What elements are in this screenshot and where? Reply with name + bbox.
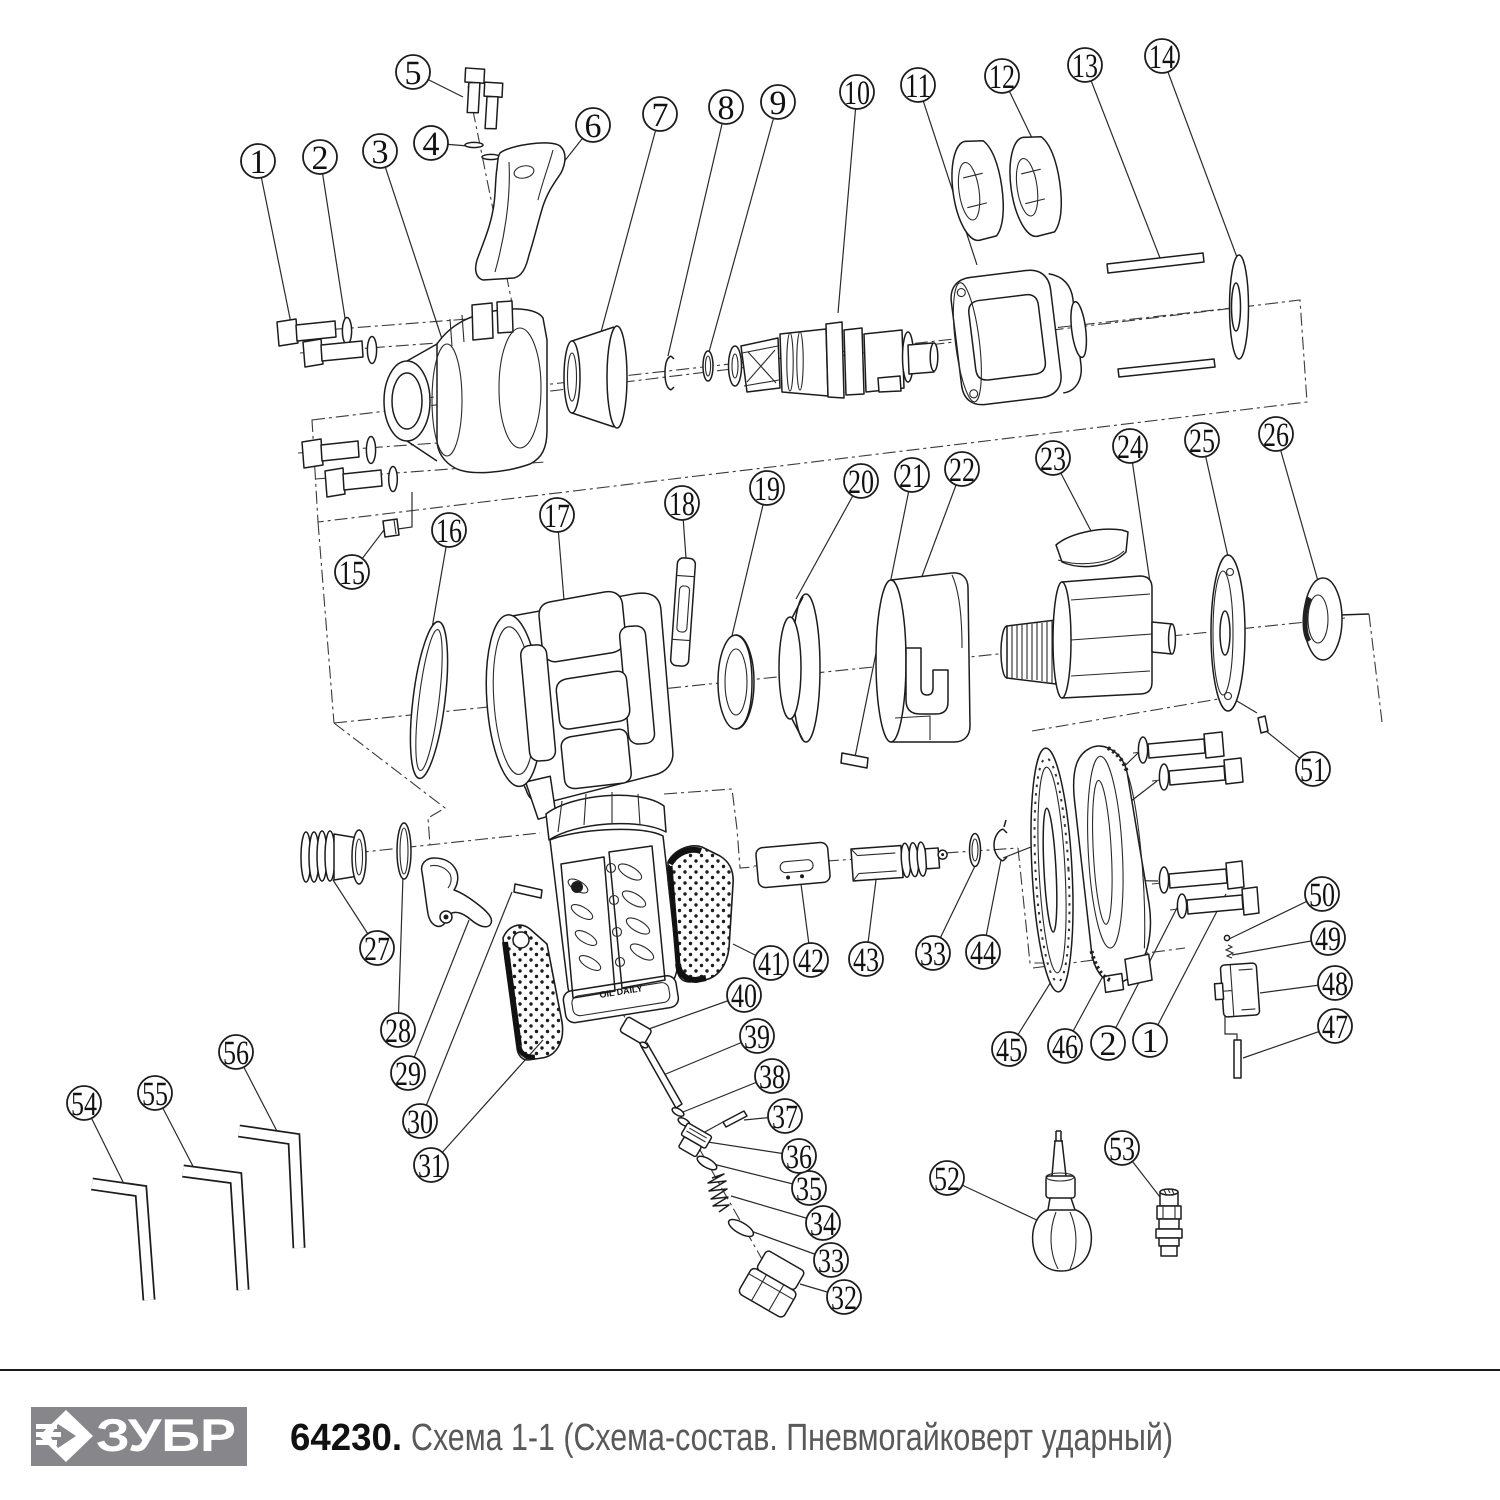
svg-text:16: 16 [436, 513, 462, 550]
svg-text:20: 20 [848, 464, 874, 501]
svg-text:27: 27 [364, 931, 390, 968]
svg-text:53: 53 [1109, 1131, 1135, 1168]
svg-text:34: 34 [810, 1206, 836, 1243]
svg-text:40: 40 [731, 978, 757, 1015]
svg-text:47: 47 [1322, 1009, 1348, 1046]
svg-text:55: 55 [142, 1076, 168, 1113]
svg-text:10: 10 [844, 75, 870, 112]
svg-text:36: 36 [786, 1139, 812, 1176]
svg-text:48: 48 [1322, 966, 1348, 1003]
svg-text:4: 4 [423, 126, 440, 163]
svg-text:3: 3 [372, 134, 389, 171]
svg-text:8: 8 [718, 90, 735, 127]
svg-text:33: 33 [920, 936, 946, 973]
svg-text:2: 2 [312, 140, 329, 177]
svg-text:23: 23 [1040, 441, 1066, 478]
svg-text:45: 45 [996, 1032, 1022, 1069]
svg-text:33: 33 [818, 1243, 844, 1280]
svg-text:18: 18 [669, 486, 695, 523]
svg-text:49: 49 [1315, 921, 1341, 958]
svg-text:19: 19 [754, 471, 780, 508]
svg-text:31: 31 [418, 1148, 444, 1185]
svg-text:13: 13 [1072, 48, 1098, 85]
svg-text:29: 29 [395, 1056, 421, 1093]
svg-text:5: 5 [405, 55, 422, 92]
svg-text:Схема 1-1 (Схема-состав. Пневм: Схема 1-1 (Схема-состав. Пневмогайковерт… [411, 1417, 1173, 1459]
svg-text:43: 43 [853, 942, 879, 979]
svg-text:ЗУБР: ЗУБР [96, 1409, 236, 1461]
svg-text:9: 9 [770, 85, 787, 122]
svg-text:1: 1 [1142, 1023, 1159, 1060]
svg-text:44: 44 [970, 935, 996, 972]
svg-text:39: 39 [744, 1019, 770, 1056]
svg-text:24: 24 [1117, 429, 1143, 466]
svg-text:25: 25 [1189, 423, 1215, 460]
svg-text:42: 42 [798, 943, 824, 980]
svg-text:35: 35 [796, 1171, 822, 1208]
svg-text:30: 30 [407, 1104, 433, 1141]
svg-text:28: 28 [385, 1013, 411, 1050]
svg-text:6: 6 [585, 108, 602, 145]
svg-text:64230.: 64230. [290, 1417, 402, 1459]
svg-text:32: 32 [831, 1280, 857, 1317]
svg-text:1: 1 [250, 144, 267, 181]
svg-text:56: 56 [223, 1035, 249, 1072]
svg-text:11: 11 [905, 68, 931, 105]
svg-text:52: 52 [934, 1161, 960, 1198]
svg-text:12: 12 [989, 59, 1015, 96]
svg-text:51: 51 [1300, 752, 1326, 789]
svg-text:15: 15 [339, 555, 365, 592]
svg-text:14: 14 [1149, 39, 1175, 76]
svg-text:22: 22 [949, 452, 975, 489]
svg-text:17: 17 [544, 498, 570, 535]
svg-text:38: 38 [759, 1059, 785, 1096]
svg-text:54: 54 [71, 1086, 97, 1123]
svg-text:2: 2 [1100, 1026, 1117, 1063]
svg-text:37: 37 [772, 1099, 798, 1136]
svg-text:41: 41 [758, 946, 784, 983]
svg-text:46: 46 [1052, 1029, 1078, 1066]
svg-text:7: 7 [652, 97, 669, 134]
svg-text:50: 50 [1309, 877, 1335, 914]
svg-text:21: 21 [899, 458, 925, 495]
svg-text:26: 26 [1263, 417, 1289, 454]
